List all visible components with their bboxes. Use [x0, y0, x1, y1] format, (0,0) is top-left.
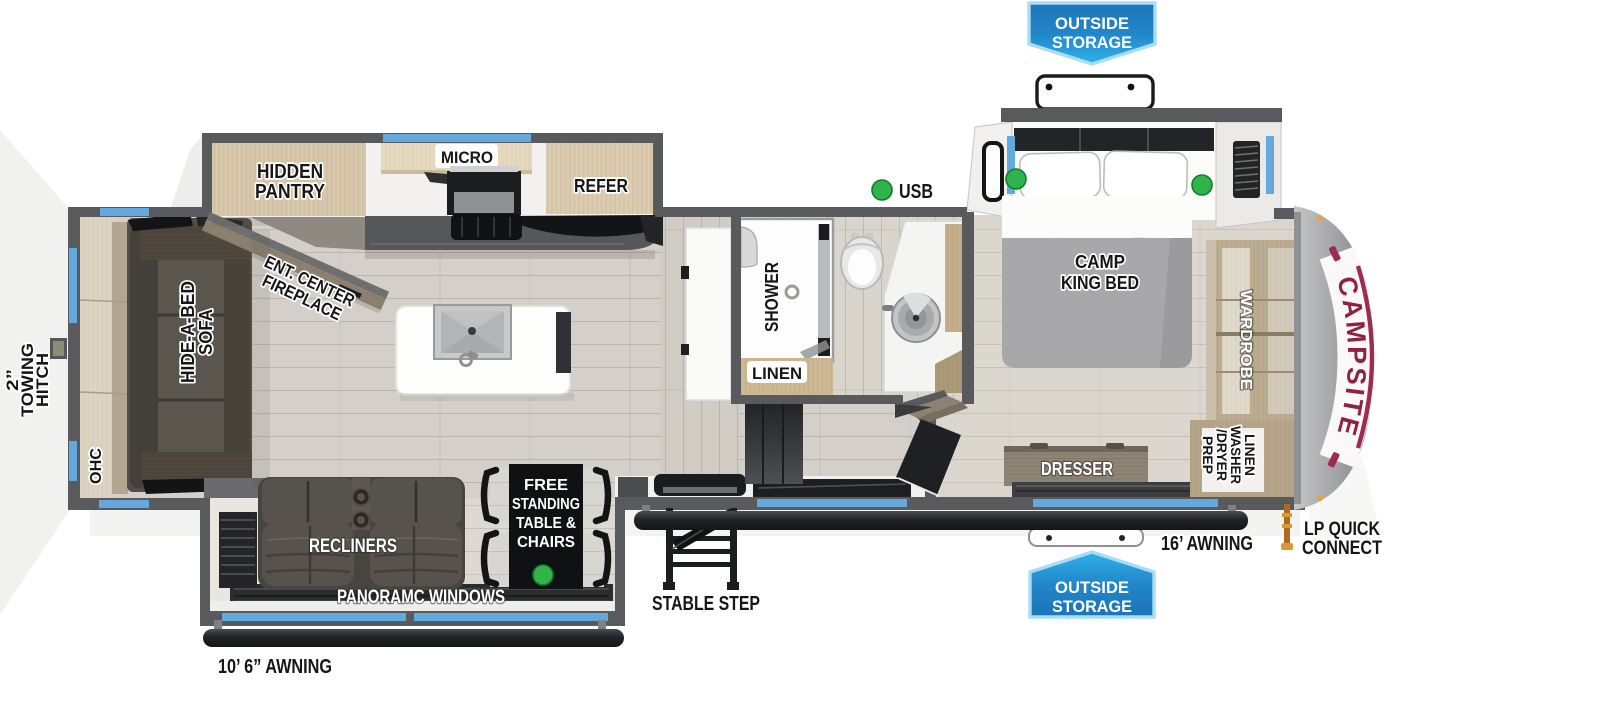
svg-text:16’ AWNING: 16’ AWNING	[1161, 533, 1253, 555]
svg-text:PREP: PREP	[1200, 436, 1215, 474]
svg-text:OUTSIDE: OUTSIDE	[1055, 15, 1129, 33]
svg-text:CAMP: CAMP	[1075, 252, 1125, 272]
svg-text:SOFA: SOFA	[196, 309, 216, 355]
svg-text:CHAIRS: CHAIRS	[517, 534, 575, 551]
svg-text:STORAGE: STORAGE	[1052, 598, 1132, 616]
svg-text:STORAGE: STORAGE	[1052, 34, 1132, 52]
svg-text:FREE: FREE	[524, 477, 568, 494]
svg-text:/DRYER: /DRYER	[1214, 429, 1229, 481]
svg-text:USB: USB	[899, 181, 933, 203]
svg-text:MICRO: MICRO	[441, 148, 493, 167]
svg-text:OUTSIDE: OUTSIDE	[1055, 579, 1129, 597]
svg-text:LINEN: LINEN	[1242, 434, 1257, 476]
svg-text:WARDROBE: WARDROBE	[1237, 290, 1254, 390]
svg-text:STANDING: STANDING	[512, 496, 580, 513]
svg-text:STABLE STEP: STABLE STEP	[652, 593, 760, 615]
svg-text:LP QUICK: LP QUICK	[1304, 519, 1380, 540]
svg-text:HITCH: HITCH	[33, 353, 52, 407]
svg-text:SHOWER: SHOWER	[762, 262, 782, 332]
svg-text:LINEN: LINEN	[752, 364, 802, 383]
svg-text:DRESSER: DRESSER	[1041, 459, 1113, 479]
svg-text:OHC: OHC	[88, 448, 105, 484]
svg-text:RECLINERS: RECLINERS	[309, 536, 397, 557]
svg-text:PANTRY: PANTRY	[255, 181, 326, 203]
svg-text:CONNECT: CONNECT	[1302, 538, 1382, 559]
svg-text:REFER: REFER	[574, 176, 628, 196]
svg-text:TABLE &: TABLE &	[516, 515, 576, 532]
svg-text:HIDE-A-BED: HIDE-A-BED	[178, 281, 198, 383]
svg-text:PANORAMC WINDOWS: PANORAMC WINDOWS	[337, 587, 505, 608]
svg-text:WASHER: WASHER	[1228, 426, 1243, 484]
svg-text:HIDDEN: HIDDEN	[257, 161, 323, 183]
svg-text:10’ 6” AWNING: 10’ 6” AWNING	[218, 656, 332, 678]
svg-text:KING BED: KING BED	[1061, 273, 1139, 293]
